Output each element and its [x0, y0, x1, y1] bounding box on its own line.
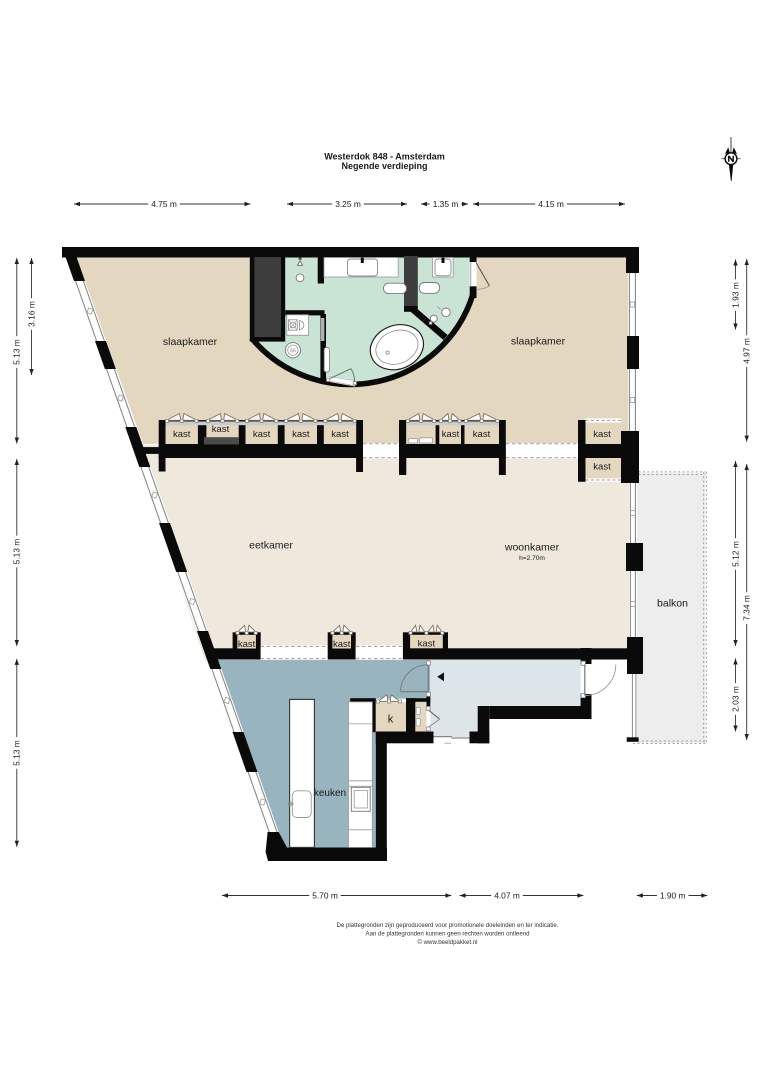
svg-text:woonkamer: woonkamer — [504, 542, 560, 554]
svg-text:4.75 m: 4.75 m — [151, 199, 177, 209]
svg-text:De plattegronden zijn geproduc: De plattegronden zijn geproduceerd voor … — [337, 922, 559, 929]
svg-text:4.07 m: 4.07 m — [494, 891, 520, 901]
svg-text:kast: kast — [442, 429, 460, 440]
svg-text:kast: kast — [333, 639, 351, 650]
svg-text:5.13 m: 5.13 m — [12, 539, 22, 565]
svg-text:kast: kast — [238, 639, 256, 650]
svg-text:1.90 m: 1.90 m — [660, 891, 686, 901]
svg-text:7.34 m: 7.34 m — [742, 595, 752, 621]
svg-text:Aan de plattegronden kunnen ge: Aan de plattegronden kunnen geen rechten… — [366, 930, 530, 937]
svg-text:kast: kast — [418, 638, 436, 649]
svg-text:kast: kast — [253, 429, 271, 440]
svg-text:5.12 m: 5.12 m — [730, 541, 740, 567]
svg-text:© www.beeldpakket.nl: © www.beeldpakket.nl — [417, 939, 477, 946]
svg-text:kast: kast — [593, 429, 611, 440]
svg-text:2.03 m: 2.03 m — [730, 686, 740, 712]
svg-text:kast: kast — [212, 424, 230, 435]
svg-text:eetkamer: eetkamer — [249, 540, 293, 552]
svg-text:5.70 m: 5.70 m — [312, 891, 338, 901]
svg-text:kast: kast — [292, 429, 310, 440]
svg-text:keuken: keuken — [314, 788, 346, 799]
svg-text:k: k — [388, 714, 394, 726]
svg-text:slaapkamer: slaapkamer — [163, 336, 218, 348]
svg-text:balkon: balkon — [657, 598, 688, 610]
svg-text:4.97 m: 4.97 m — [742, 338, 752, 364]
svg-text:kast: kast — [331, 429, 349, 440]
svg-text:5.13 m: 5.13 m — [12, 339, 22, 365]
svg-text:slaapkamer: slaapkamer — [511, 336, 566, 348]
svg-text:1.35 m: 1.35 m — [433, 199, 459, 209]
svg-text:Negende verdieping: Negende verdieping — [341, 161, 427, 171]
svg-text:4.15 m: 4.15 m — [538, 199, 564, 209]
svg-text:5.13 m: 5.13 m — [12, 740, 22, 766]
svg-text:h=2.70m: h=2.70m — [519, 555, 545, 562]
svg-text:3.16 m: 3.16 m — [26, 301, 36, 327]
svg-text:kast: kast — [593, 462, 611, 473]
svg-text:3.25 m: 3.25 m — [335, 199, 361, 209]
svg-text:kast: kast — [473, 429, 491, 440]
svg-text:kast: kast — [173, 429, 191, 440]
svg-text:1.93 m: 1.93 m — [730, 282, 740, 308]
